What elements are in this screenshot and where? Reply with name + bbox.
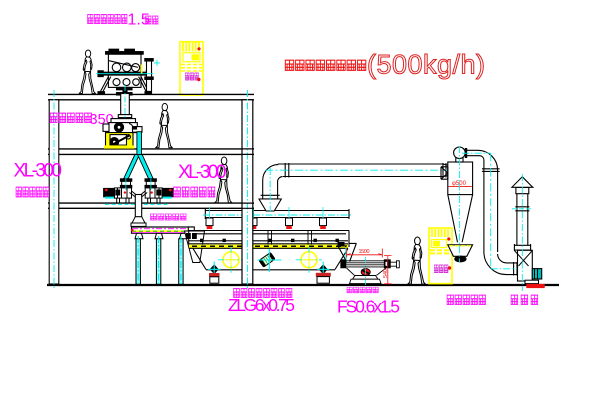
svg-text:ZLG6x0.75: ZLG6x0.75 [228, 295, 295, 315]
svg-text:(500kg/h): (500kg/h) [367, 50, 485, 80]
svg-text:540: 540 [383, 269, 389, 278]
svg-text:XL-300: XL-300 [178, 162, 227, 183]
svg-text:XL-300: XL-300 [14, 161, 63, 182]
svg-text:1500: 1500 [359, 249, 370, 255]
svg-text:FS0.6x1.5: FS0.6x1.5 [337, 297, 400, 317]
